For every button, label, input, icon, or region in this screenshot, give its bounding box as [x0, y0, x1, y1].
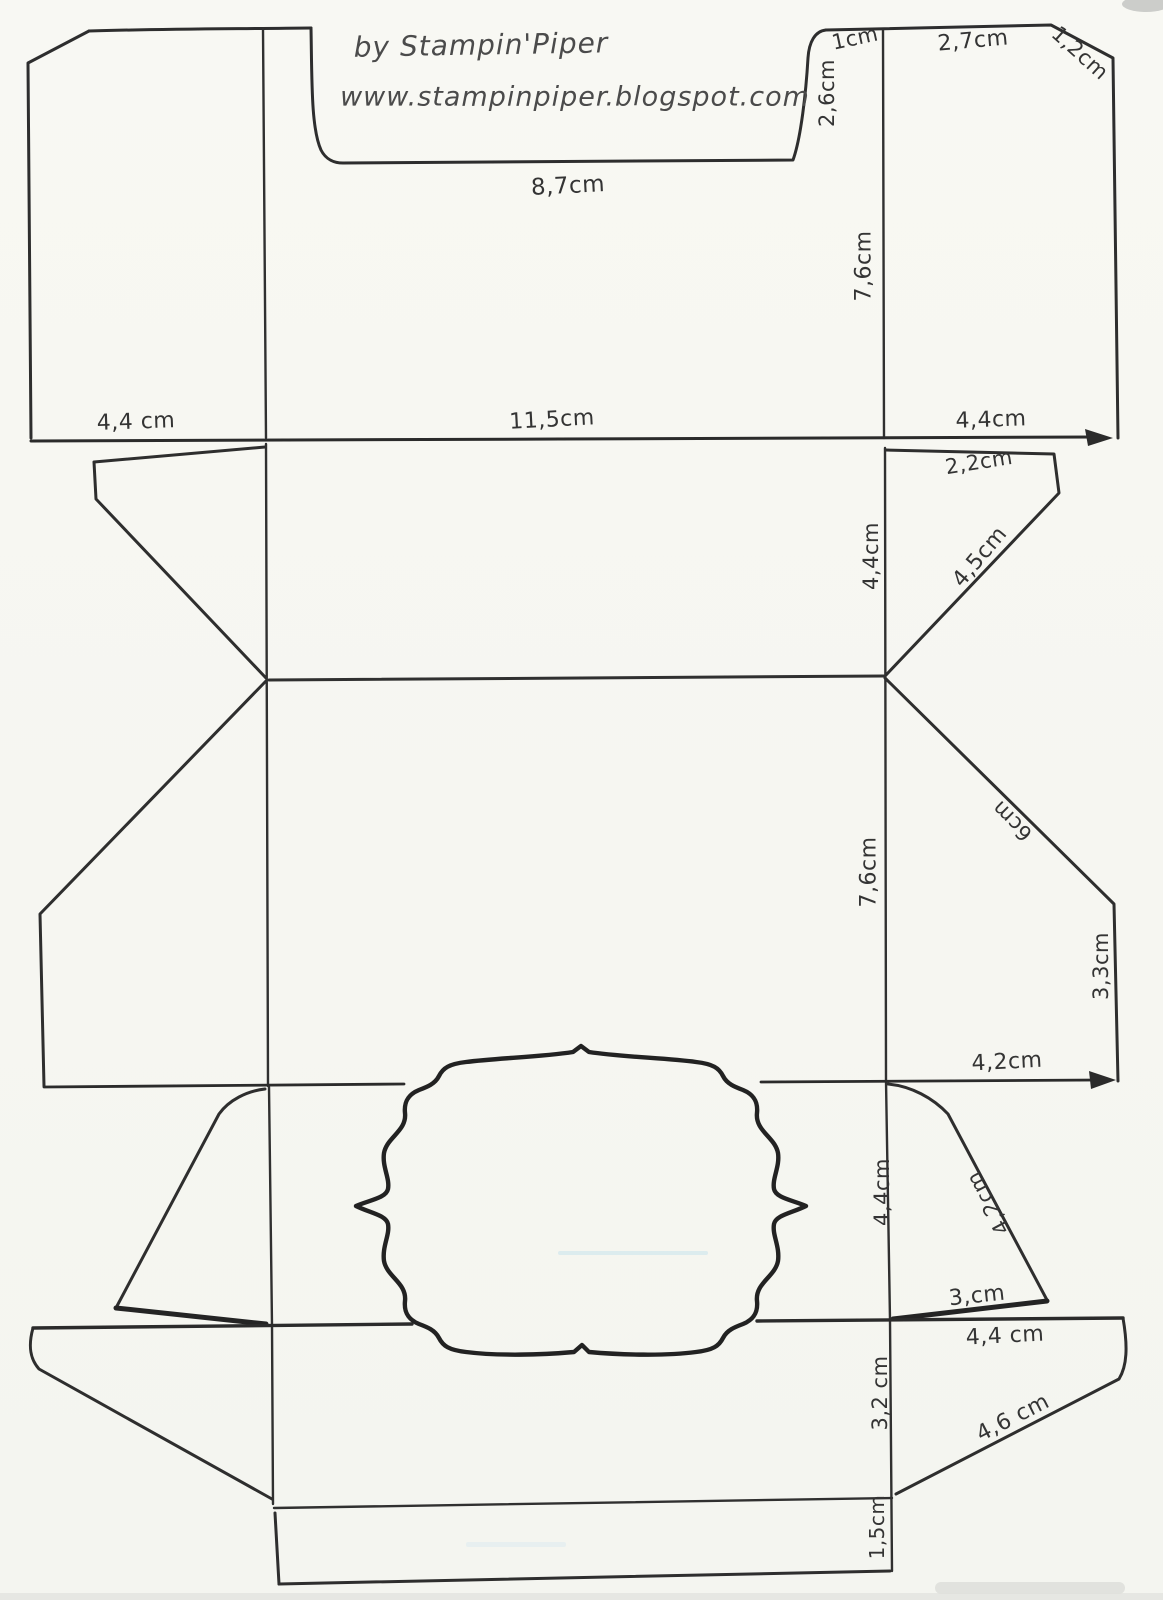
dim-label-4-4cm-lower: 4,4cm [870, 1158, 894, 1226]
bracket-label-shape [356, 1046, 806, 1355]
dim-label-8-7cm: 8,7cm [530, 171, 605, 201]
credit-text: by Stampin'Piper [353, 26, 608, 63]
dim-label-2-6cm: 2,6cm [815, 59, 839, 127]
dim-label-7-6cm-top: 7,6cm [852, 230, 877, 301]
dim-label-4-4cm-lid: 4,4 cm [965, 1321, 1045, 1350]
dim-label-11-5cm: 11,5cm [509, 405, 596, 434]
dim-label-4-4cm-topright: 4,4cm [955, 406, 1027, 433]
scan-artifacts [0, 0, 1163, 1600]
blog-url-text: www.stampinpiper.blogspot.com [340, 82, 810, 113]
dim-label-4-2cm-line: 4,2cm [971, 1048, 1043, 1077]
dim-label-3-3cm: 3,3cm [1089, 932, 1113, 1000]
dim-label-1-5cm: 1,5cm [865, 1495, 889, 1560]
dim-label-4-4cm-topleft: 4,4 cm [96, 408, 175, 436]
box-template-drawing [0, 0, 1163, 1600]
scanned-template-page: by Stampin'Piper www.stampinpiper.blogsp… [0, 0, 1163, 1600]
dim-label-7-6cm-mid: 7,6cm [857, 836, 882, 907]
dim-label-3-2cm: 3,2 cm [868, 1355, 892, 1430]
fold-lines [263, 29, 892, 1571]
dim-label-4-4cm-flap: 4,4cm [859, 522, 883, 590]
